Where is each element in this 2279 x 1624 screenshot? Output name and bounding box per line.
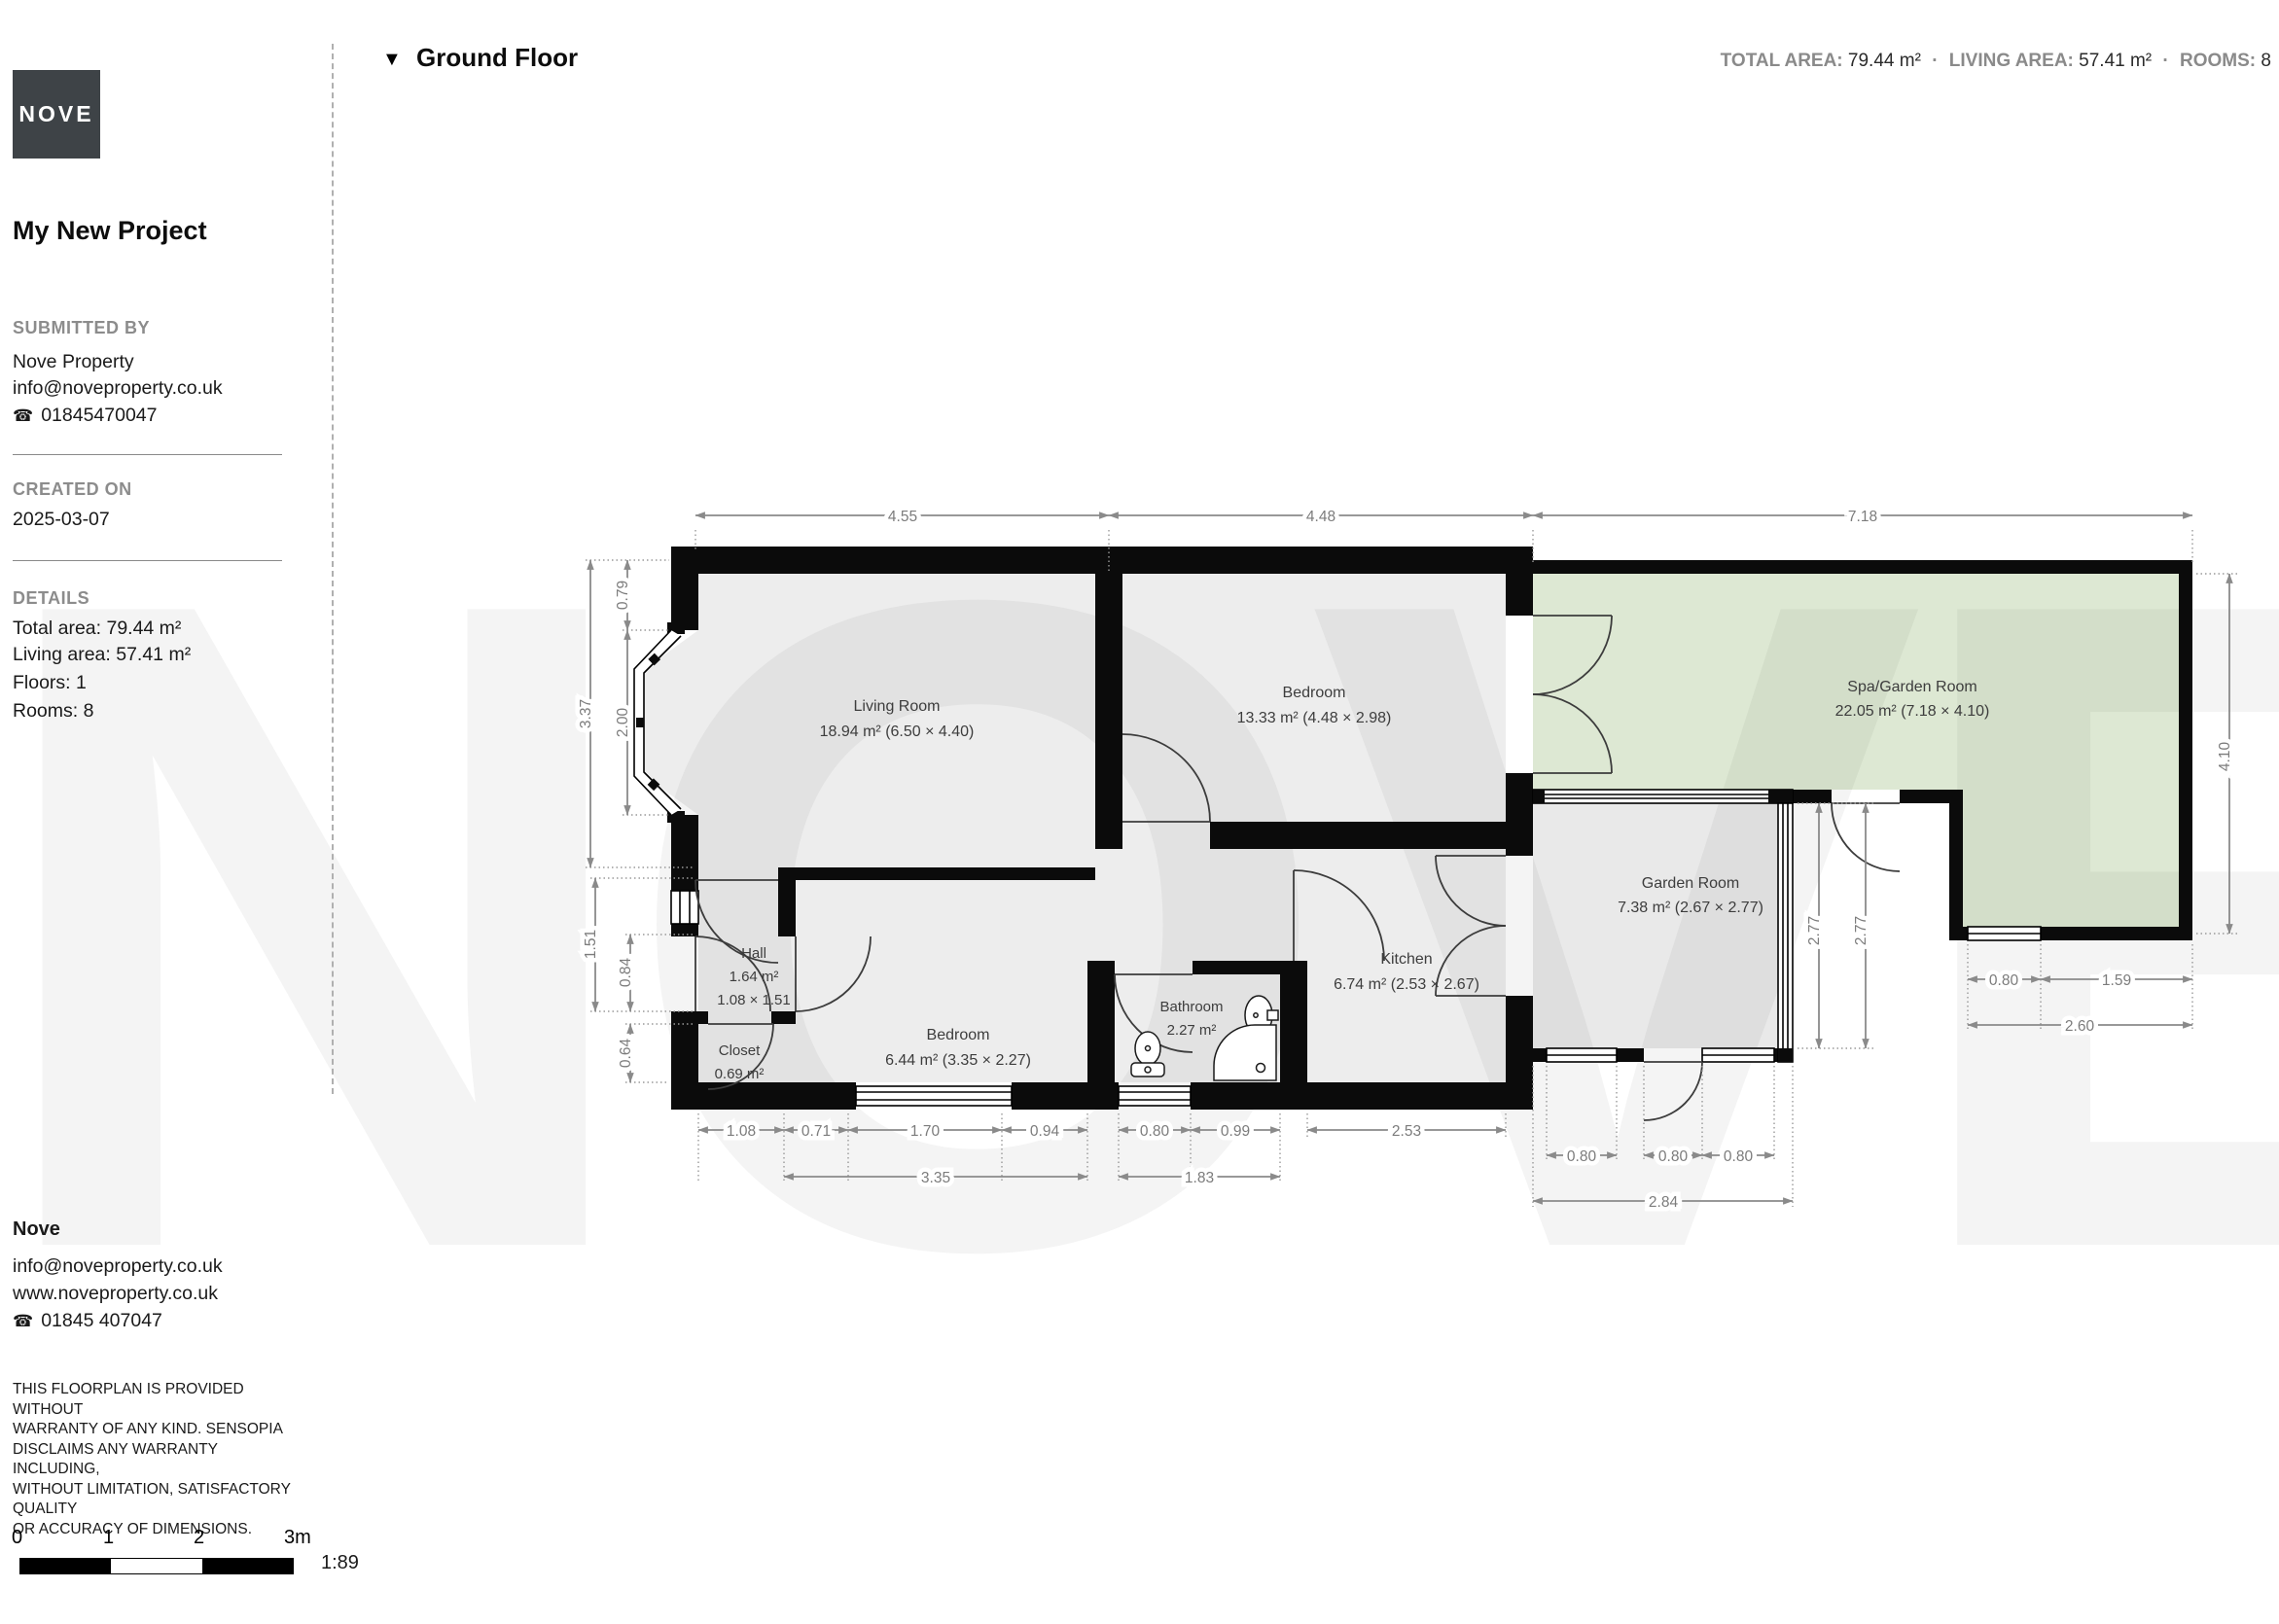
dim-label: 0.80 xyxy=(1989,972,2019,989)
svg-text:18.94 m² (6.50 × 4.40): 18.94 m² (6.50 × 4.40) xyxy=(820,724,975,740)
dim-label: 0.80 xyxy=(1724,1148,1754,1165)
svg-text:Spa/Garden Room: Spa/Garden Room xyxy=(1847,679,1976,695)
svg-text:7.38 m² (2.67 × 2.77): 7.38 m² (2.67 × 2.77) xyxy=(1618,900,1763,916)
detail-rooms: Rooms: 8 xyxy=(13,700,93,723)
dim-label: 7.18 xyxy=(1848,509,1877,525)
garden-top-glazing xyxy=(1533,790,1793,803)
created-on-label: CREATED ON xyxy=(13,479,132,500)
living-area-label: LIVING AREA: xyxy=(1949,51,2074,71)
bedroom-window xyxy=(856,1086,1012,1106)
scale-tick-0: 0 xyxy=(12,1527,22,1549)
nove-logo: NOVE xyxy=(13,70,100,159)
scale-tick-3m: 3m xyxy=(284,1527,311,1549)
svg-text:13.33 m² (4.48 × 2.98): 13.33 m² (4.48 × 2.98) xyxy=(1237,710,1392,726)
scale-ratio: 1:89 xyxy=(321,1552,359,1574)
company-phone-row: ☎01845470047 xyxy=(13,405,157,427)
dim-label: 0.80 xyxy=(1567,1148,1597,1165)
rooms-label: ROOMS: xyxy=(2180,51,2256,71)
floor-selector-triangle-icon[interactable]: ▼ xyxy=(382,49,402,71)
living-area-value: 57.41 m² xyxy=(2079,51,2152,71)
company-name: Nove Property xyxy=(13,351,134,373)
svg-text:1.64 m²: 1.64 m² xyxy=(730,969,779,985)
svg-text:6.44 m² (3.35 × 2.27): 6.44 m² (3.35 × 2.27) xyxy=(885,1052,1031,1069)
area-stats: TOTAL AREA: 79.44 m² · LIVING AREA: 57.4… xyxy=(1721,51,2271,72)
scale-bar-segment xyxy=(202,1559,293,1573)
dim-label: 1.51 xyxy=(583,930,599,959)
svg-text:Bedroom: Bedroom xyxy=(927,1027,990,1043)
dim-label: 2.77 xyxy=(1853,916,1869,945)
dim-label: 3.35 xyxy=(921,1170,950,1186)
detail-floors: Floors: 1 xyxy=(13,672,87,694)
detail-total-area: Total area: 79.44 m² xyxy=(13,618,181,640)
scale-bar-segment xyxy=(111,1559,201,1573)
company-email: info@noveproperty.co.uk xyxy=(13,377,223,400)
project-title: My New Project xyxy=(13,216,207,246)
footer-email: info@noveproperty.co.uk xyxy=(13,1255,223,1278)
dim-label: 1.08 xyxy=(727,1123,756,1140)
total-area-label: TOTAL AREA: xyxy=(1721,51,1843,71)
floor-plan: NOVE xyxy=(0,0,2279,1624)
stats-separator: · xyxy=(1926,51,1943,71)
svg-text:Living Room: Living Room xyxy=(854,698,941,715)
dim-label: 0.64 xyxy=(618,1039,634,1069)
dim-label: 0.80 xyxy=(1140,1123,1170,1140)
disclaimer-text: THIS FLOORPLAN IS PROVIDED WITHOUT WARRA… xyxy=(13,1380,304,1539)
dim-label: 4.10 xyxy=(2217,742,2233,772)
dim-label: 3.37 xyxy=(578,699,594,728)
svg-text:Hall: Hall xyxy=(741,945,766,962)
dim-label: 4.55 xyxy=(888,509,917,525)
footer-phone: 01845 407047 xyxy=(41,1310,162,1331)
dim-label: 0.71 xyxy=(801,1123,831,1140)
detail-living-area: Living area: 57.41 m² xyxy=(13,644,191,666)
scale-tick-1: 1 xyxy=(103,1527,114,1549)
svg-text:Bathroom: Bathroom xyxy=(1159,999,1223,1015)
dim-label: 1.70 xyxy=(910,1123,941,1140)
phone-icon: ☎ xyxy=(13,1312,33,1330)
dim-label: 0.99 xyxy=(1221,1123,1250,1140)
svg-text:2.27 m²: 2.27 m² xyxy=(1167,1022,1217,1039)
svg-text:6.74 m² (2.53 × 2.67): 6.74 m² (2.53 × 2.67) xyxy=(1334,976,1479,993)
scale-bar xyxy=(19,1558,294,1574)
sidebar-divider xyxy=(13,454,282,455)
submitted-by-label: SUBMITTED BY xyxy=(13,318,150,338)
dim-label: 2.00 xyxy=(615,708,631,738)
company-phone: 01845470047 xyxy=(41,405,157,426)
svg-text:Garden Room: Garden Room xyxy=(1642,875,1740,892)
dim-label: 1.59 xyxy=(2102,972,2131,989)
sidebar-divider xyxy=(13,560,282,561)
footer-phone-row: ☎01845 407047 xyxy=(13,1310,162,1332)
rooms-value: 8 xyxy=(2261,51,2271,71)
dim-label: 0.84 xyxy=(618,958,634,988)
details-label: DETAILS xyxy=(13,588,89,609)
footer-website: www.noveproperty.co.uk xyxy=(13,1283,218,1305)
svg-text:1.08 × 1.51: 1.08 × 1.51 xyxy=(717,992,790,1008)
scale-bar-segment xyxy=(20,1559,111,1573)
created-on-value: 2025-03-07 xyxy=(13,509,110,531)
garden-right-glazing xyxy=(1778,803,1793,1062)
stats-separator: · xyxy=(2156,51,2174,71)
panel-divider xyxy=(332,44,334,1094)
total-area-value: 79.44 m² xyxy=(1848,51,1921,71)
footer-company: Nove xyxy=(13,1218,60,1241)
scale-tick-2: 2 xyxy=(194,1527,204,1549)
dim-label: 1.83 xyxy=(1185,1170,1214,1186)
svg-text:Bedroom: Bedroom xyxy=(1283,685,1346,701)
dim-label: 4.48 xyxy=(1306,509,1335,525)
dim-label: 0.80 xyxy=(1658,1148,1689,1165)
dim-label: 2.53 xyxy=(1392,1123,1421,1140)
spa-window xyxy=(1968,927,2041,940)
svg-text:0.69 m²: 0.69 m² xyxy=(715,1066,765,1082)
dim-label: 2.60 xyxy=(2065,1018,2095,1035)
bathroom-window xyxy=(1119,1086,1191,1106)
svg-text:Kitchen: Kitchen xyxy=(1380,951,1432,968)
dim-label: 2.77 xyxy=(1806,916,1823,945)
hall-window xyxy=(671,891,698,924)
phone-icon: ☎ xyxy=(13,406,33,425)
floor-title[interactable]: Ground Floor xyxy=(416,43,578,73)
dim-label: 0.94 xyxy=(1030,1123,1060,1140)
nove-logo-text: NOVE xyxy=(18,101,93,127)
dim-label: 2.84 xyxy=(1649,1194,1679,1211)
svg-text:Closet: Closet xyxy=(719,1042,761,1059)
dim-label: 0.79 xyxy=(615,581,631,610)
svg-text:22.05 m² (7.18 × 4.10): 22.05 m² (7.18 × 4.10) xyxy=(1835,703,1990,720)
